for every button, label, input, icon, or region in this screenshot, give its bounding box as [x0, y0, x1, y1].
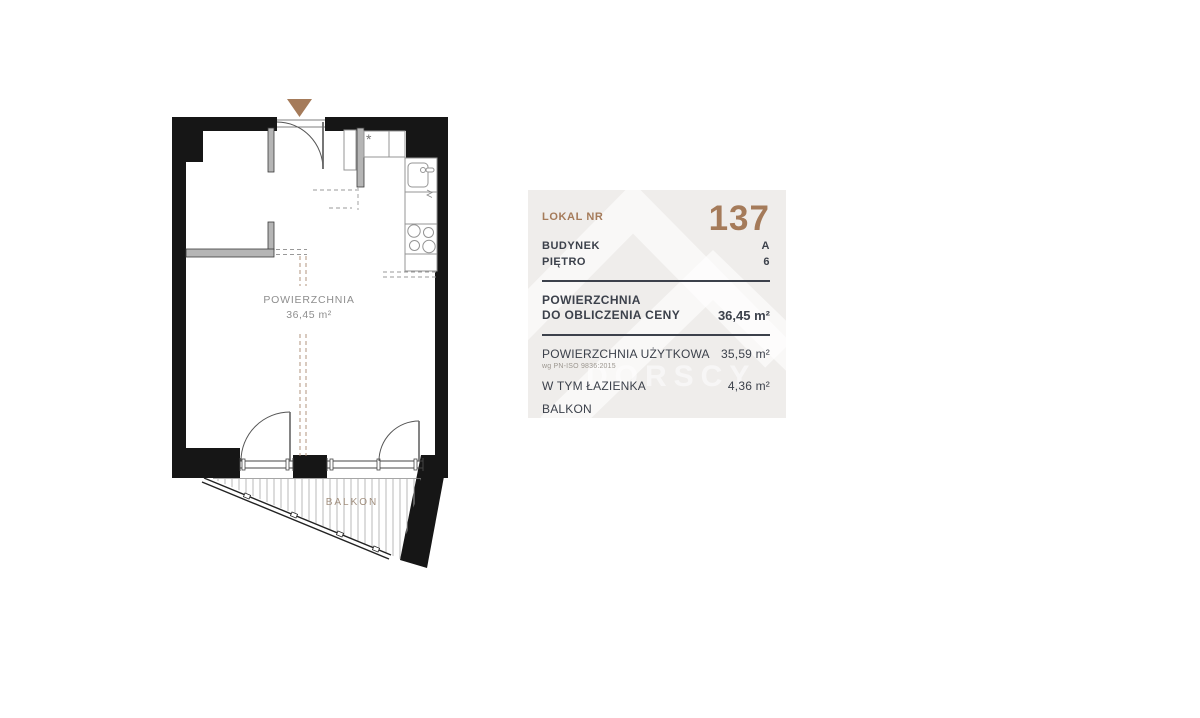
budynek-value: A [762, 240, 770, 252]
panel-divider-2 [542, 334, 770, 336]
row-balcony: BALKON [542, 402, 770, 416]
balcony-panel-label: BALKON [542, 402, 592, 416]
bathroom-label: W TYM ŁAZIENKA [542, 379, 646, 393]
price-area-label-line2: DO OBLICZENIA CENY [542, 308, 680, 322]
faucet [421, 168, 426, 173]
lokal-nr-value: 137 [709, 202, 770, 235]
row-pietro: PIĘTRO 6 [542, 254, 770, 270]
row-bathroom: W TYM ŁAZIENKA 4,36 m² [542, 379, 770, 393]
plan-area-label: POWIERZCHNIA [263, 294, 354, 306]
price-area-value: 36,45 m² [718, 308, 770, 323]
row-usable-area: POWIERZCHNIA UŻYTKOWA 35,59 m² [542, 347, 770, 361]
stove-vent-symbol: * [366, 131, 372, 147]
usable-area-label: POWIERZCHNIA UŻYTKOWA [542, 347, 710, 361]
price-area-label: POWIERZCHNIA DO OBLICZENIA CENY [542, 293, 680, 323]
usable-area-value: 35,59 m² [721, 347, 770, 361]
sink [408, 163, 428, 187]
price-area-label-line1: POWIERZCHNIA [542, 293, 641, 307]
entrance-door [277, 120, 325, 169]
pietro-label: PIĘTRO [542, 256, 586, 268]
partition-walls [186, 128, 364, 257]
balcony [202, 478, 421, 559]
lokal-nr-label: LOKAL NR [542, 211, 603, 223]
dashed-guides-brown [300, 256, 306, 456]
plan-area-value: 36,45 m² [286, 309, 331, 321]
page: * POWIERZCHNIA 36,45 m² BALKON DORSCY [0, 0, 1200, 718]
bathroom-value: 4,36 m² [728, 379, 770, 393]
unit-info-panel: DORSCY LOKAL NR 137 BUDYNEK A PIĘTRO 6 P… [528, 190, 786, 418]
usable-area-note: wg PN-ISO 9836:2015 [542, 363, 770, 370]
row-budynek: BUDYNEK A [542, 238, 770, 254]
panel-divider [542, 280, 770, 282]
row-lokal: LOKAL NR 137 [542, 202, 770, 238]
hall-cabinet [344, 130, 356, 170]
row-price-area: POWIERZCHNIA DO OBLICZENIA CENY 36,45 m² [542, 293, 770, 323]
balcony-windows [240, 458, 423, 471]
pietro-value: 6 [763, 256, 770, 268]
balcony-label: BALKON [326, 497, 379, 508]
entrance-arrow-icon [287, 99, 312, 117]
balcony-door-swings [241, 412, 419, 461]
budynek-label: BUDYNEK [542, 240, 600, 252]
